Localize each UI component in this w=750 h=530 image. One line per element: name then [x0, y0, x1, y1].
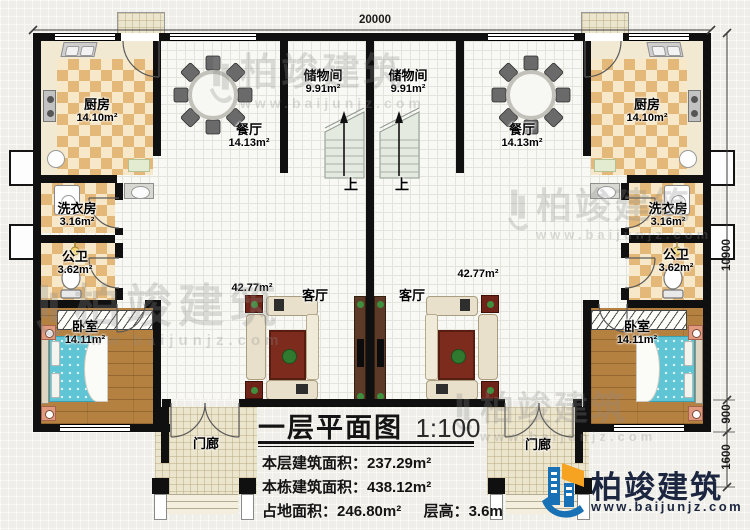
pillow [51, 373, 60, 398]
wall [115, 228, 123, 235]
stat-value: 3.6m [469, 503, 503, 520]
room-area: 14.11m² [65, 334, 105, 346]
brand-url: www.baijunjz.com [591, 499, 743, 514]
plant-icon [451, 349, 466, 364]
nightstand-icon [688, 325, 703, 340]
room-area: 3.62m² [58, 264, 93, 276]
room-name: 厨房 [627, 98, 668, 112]
sink-basin [65, 46, 80, 56]
sofa-symbol [426, 380, 478, 400]
room-label-laundry-left: 洗衣房 3.16m² [57, 202, 96, 228]
room-label-kitchen-right: 厨房 14.10m² [627, 98, 668, 124]
room-label-bedroom-left: 卧室 14.11m² [65, 320, 105, 346]
window [55, 33, 115, 41]
exterior-vent-box [9, 224, 35, 260]
room-label-laundry-right: 洗衣房 3.16m² [648, 202, 687, 228]
stat-line-footprint: 占地面积：246.80m² 层高：3.6m [262, 500, 503, 521]
title-underline [258, 441, 474, 444]
window [488, 33, 574, 41]
room-label-dining-right: 餐厅 14.13m² [502, 123, 543, 149]
stove-icon [43, 90, 56, 122]
wall [456, 41, 464, 173]
wall [41, 235, 115, 243]
title-row: 一层平面图 1:100 [258, 406, 481, 445]
vanity-sink-icon [124, 183, 154, 199]
room-area: 14.11m² [617, 334, 657, 346]
burner [691, 110, 698, 117]
wall [629, 235, 703, 243]
stat-value: 438.12m² [367, 479, 431, 496]
porch-pier [575, 407, 583, 463]
wall [627, 175, 703, 183]
wall [573, 399, 582, 407]
sofa-symbol [478, 314, 498, 380]
wall [684, 424, 711, 432]
kitchen-sink-icon [60, 42, 97, 57]
nightstand-icon [41, 406, 56, 421]
plant-icon [487, 387, 494, 394]
room-area: 42.77m² [458, 268, 499, 280]
plant-stand-icon [245, 295, 263, 313]
vanity-sink-icon [590, 183, 620, 199]
porch-pier [161, 407, 169, 463]
brand-logo-icon [540, 461, 586, 521]
nightstand-icon [41, 325, 56, 340]
stat-label: 层高： [424, 503, 469, 520]
exterior-vent-box [709, 150, 735, 186]
porch-column [239, 478, 256, 494]
plant-stand-icon [481, 295, 499, 313]
dimension-label-top: 20000 [359, 14, 391, 26]
room-name: 客厅 [302, 289, 328, 303]
kitchen-mat [128, 159, 150, 172]
porch-steps [166, 494, 238, 514]
room-name: 洗衣房 [648, 202, 687, 216]
room-name: 储物间 [303, 69, 342, 83]
round-basin-icon [47, 150, 65, 168]
room-label-kitchen-left: 厨房 14.10m² [77, 98, 118, 124]
wall [574, 33, 585, 41]
wall [580, 424, 614, 432]
room-name: 客厅 [399, 289, 425, 303]
round-basin-icon [679, 150, 697, 168]
stairs-up-label-right: 上 [395, 177, 409, 192]
lamp [45, 410, 54, 419]
stat-label: 本层建筑面积： [262, 455, 367, 472]
wall [33, 33, 41, 432]
sofa-symbol [426, 296, 478, 316]
stat-label: 占地面积： [262, 503, 337, 520]
chaise-symbol [306, 314, 319, 380]
room-name: 门廊 [525, 438, 551, 452]
room-name: 餐厅 [502, 123, 543, 137]
plant-icon [377, 301, 384, 308]
plant-icon [251, 387, 258, 394]
wall [153, 41, 161, 156]
room-name: 餐厅 [229, 123, 270, 137]
sink-basin [651, 46, 666, 56]
lamp [692, 329, 701, 338]
kitchen-sink-icon [646, 42, 683, 57]
room-area: 42.77m² [232, 282, 273, 294]
wall [280, 41, 288, 173]
kitchen-mat [594, 159, 616, 172]
wall [145, 300, 153, 308]
chaise-symbol [425, 314, 438, 380]
tv-cabinet [354, 296, 366, 404]
wall [256, 33, 488, 41]
room-name: 厨房 [77, 98, 118, 112]
door-opening [121, 33, 159, 41]
room-area: 14.10m² [627, 112, 668, 124]
room-name: 卧室 [65, 320, 105, 334]
wall [591, 300, 599, 308]
bed-headboard [41, 334, 49, 404]
porch-pilaster [154, 494, 167, 520]
cushion [296, 384, 308, 394]
room-area: 9.91m² [303, 83, 342, 95]
porch-pilaster [241, 494, 254, 520]
window [170, 33, 256, 41]
nightstand-icon [688, 406, 703, 421]
cushion [436, 384, 448, 394]
room-label-bath-right: 公卫 3.62m² [659, 248, 694, 274]
wall [621, 243, 629, 258]
wall [627, 300, 703, 308]
page-title: 一层平面图 [258, 413, 403, 443]
rug [269, 330, 306, 380]
pillow [51, 341, 60, 366]
sink-basin [666, 46, 681, 56]
room-label-porch-right: 门廊 [525, 438, 551, 452]
lamp [45, 329, 54, 338]
dimension-label-right-total: 10900 [721, 239, 733, 271]
room-label-bath-left: 公卫 3.62m² [58, 250, 93, 276]
wall [115, 243, 123, 258]
floor-plan: 20000 10900 900 1600 厨房 14.10m² 厨房 14.10… [0, 0, 750, 530]
room-name: 储物间 [388, 69, 427, 83]
title-underline-thin [258, 446, 474, 447]
window [614, 424, 684, 432]
room-label-storage-left: 储物间 9.91m² [303, 69, 342, 95]
stat-line-floor-area: 本层建筑面积：237.29m² [262, 452, 431, 473]
wall [703, 33, 711, 432]
tv-icon [377, 339, 384, 367]
wall [621, 183, 629, 200]
stat-line-building-area: 本栋建筑面积：438.12m² [262, 476, 431, 497]
room-area: 3.16m² [648, 216, 687, 228]
room-name: 洗衣房 [57, 202, 96, 216]
room-label-living-left: 客厅 [302, 289, 328, 303]
room-area: 14.10m² [77, 112, 118, 124]
wall [583, 300, 591, 424]
stove-icon [688, 90, 701, 122]
room-name: 卧室 [617, 320, 657, 334]
porch-column [488, 478, 505, 494]
plant-icon [251, 301, 258, 308]
window [60, 424, 130, 432]
wall [159, 33, 170, 41]
burner [47, 110, 54, 117]
room-label-living-left-area: 42.77m² [232, 282, 273, 294]
stat-label: 本栋建筑面积： [262, 479, 367, 496]
room-area: 3.62m² [659, 262, 694, 274]
plant-icon [282, 349, 297, 364]
sofa-symbol [266, 380, 318, 400]
window [629, 33, 689, 41]
room-name: 公卫 [58, 250, 93, 264]
pillow [684, 373, 693, 398]
basin [131, 186, 150, 199]
sofa-symbol [246, 314, 266, 380]
plan-scale: 1:100 [415, 413, 480, 443]
wall [162, 399, 171, 407]
plant-icon [357, 301, 364, 308]
cushion [274, 299, 284, 311]
stat-value: 237.29m² [367, 455, 431, 472]
rug [438, 330, 475, 380]
room-label-porch-left: 门廊 [193, 437, 219, 451]
room-label-living-right-area: 42.77m² [458, 268, 499, 280]
room-name: 公卫 [659, 248, 694, 262]
party-wall [366, 41, 374, 407]
room-area: 14.13m² [502, 137, 543, 149]
stat-value: 246.80m² [337, 503, 401, 520]
sink-basin [80, 46, 95, 56]
room-label-dining-left: 餐厅 14.13m² [229, 123, 270, 149]
wall [621, 228, 629, 235]
wall [33, 424, 60, 432]
dimension-label-right-mid: 900 [721, 404, 733, 423]
burner [691, 96, 698, 103]
wall [41, 300, 117, 308]
wall [153, 300, 161, 424]
porch-column [152, 478, 169, 494]
bed-headboard [695, 334, 703, 404]
basin [597, 186, 616, 199]
plant-stand-icon [245, 381, 263, 399]
plant-icon [487, 301, 494, 308]
lamp [692, 410, 701, 419]
tv-icon [357, 339, 364, 367]
room-name: 门廊 [193, 437, 219, 451]
exterior-vent-box [9, 150, 35, 186]
wall [115, 183, 123, 200]
room-area: 3.16m² [57, 216, 96, 228]
plant-stand-icon [481, 381, 499, 399]
burner [47, 96, 54, 103]
wall [621, 288, 629, 300]
cushion [460, 299, 470, 311]
wall [115, 288, 123, 300]
door-opening [585, 33, 623, 41]
room-label-storage-right: 储物间 9.91m² [388, 69, 427, 95]
wall [41, 175, 117, 183]
room-area: 9.91m² [388, 83, 427, 95]
room-area: 14.13m² [229, 137, 270, 149]
room-label-bedroom-right: 卧室 14.11m² [617, 320, 657, 346]
room-label-living-right: 客厅 [399, 289, 425, 303]
tv-cabinet [374, 296, 386, 404]
pillow [684, 341, 693, 366]
stairs-up-label-left: 上 [344, 177, 358, 192]
wall [583, 41, 591, 156]
